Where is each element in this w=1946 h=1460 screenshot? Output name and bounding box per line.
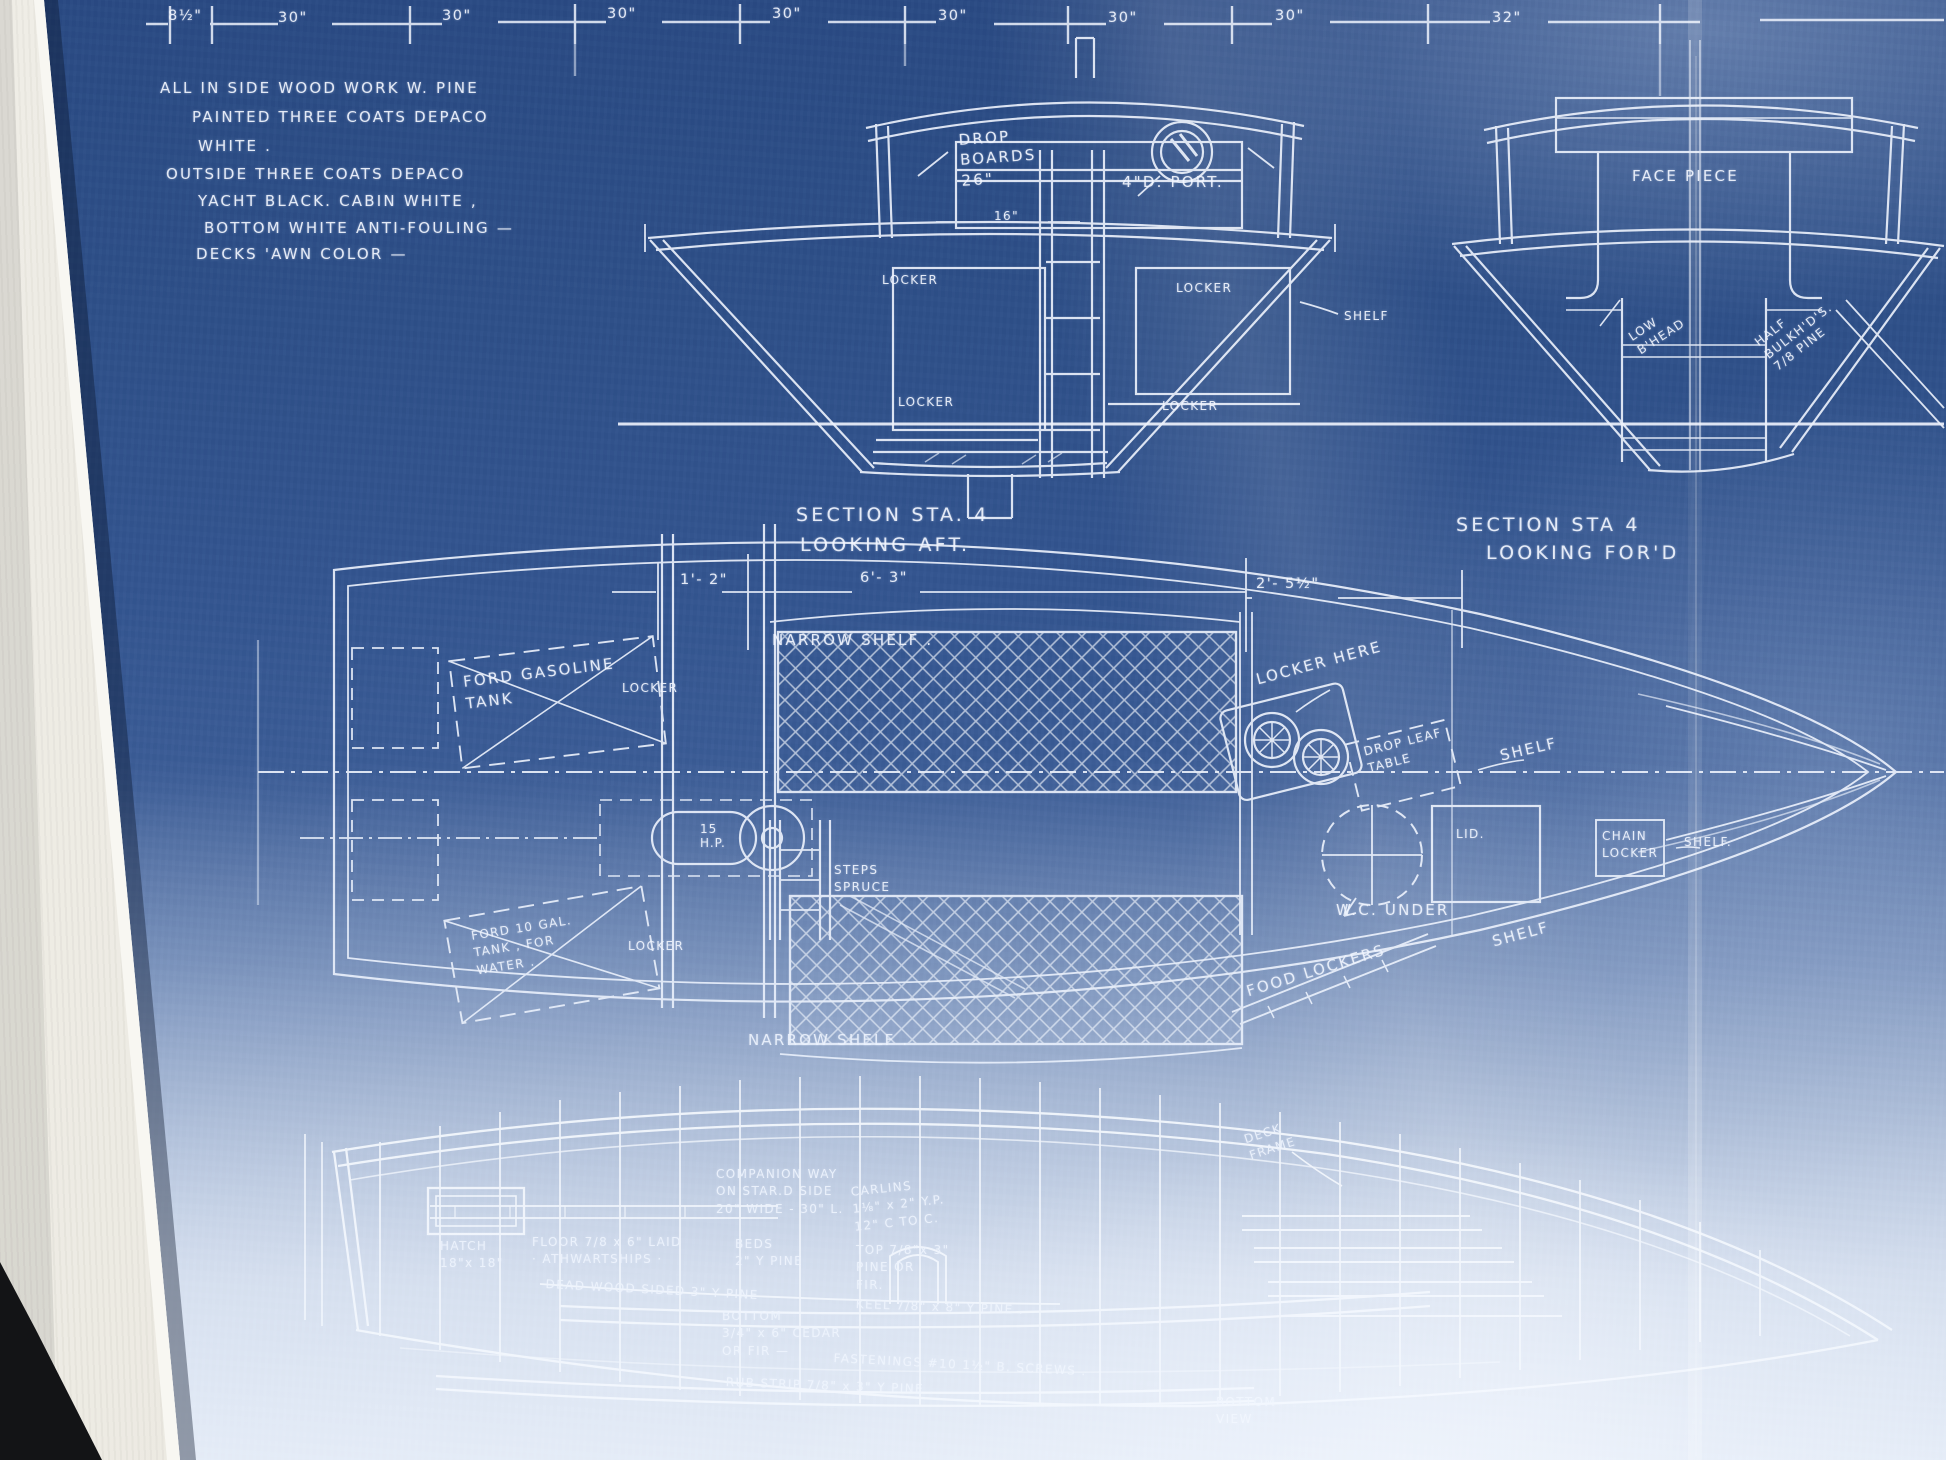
top-dim-label: 30" bbox=[607, 4, 637, 25]
face-piece-label: FACE PIECE bbox=[1632, 166, 1739, 188]
engine-label: 15 H.P. bbox=[700, 822, 726, 851]
note-line: YACHT BLACK. CABIN WHITE , bbox=[198, 191, 478, 213]
section-fwd-caption: LOOKING FOR'D bbox=[1486, 540, 1679, 568]
narrow-shelf-bottom-label: NARROW SHELF . bbox=[748, 1030, 909, 1052]
wc-under-label: W.C. UNDER bbox=[1336, 900, 1450, 922]
section-aft-drawing bbox=[645, 38, 1338, 518]
top-dim-label: 8½" bbox=[168, 6, 202, 27]
shelf-label: SHELF bbox=[1344, 308, 1389, 325]
note-line: BOTTOM WHITE ANTI-FOULING — bbox=[204, 218, 514, 240]
framed-blueprint-photo: 8½" 30" 30" 30" 30" 30" 30" 30" 32" ALL … bbox=[0, 0, 1946, 1460]
carlins-label: CARLINS 1⅛" x 2" Y.P. 12" C TO C. bbox=[850, 1174, 948, 1236]
locker-label: LOCKER bbox=[882, 272, 938, 289]
companion-way-label: COMPANION WAY ON STAR.D SIDE 20" WIDE - … bbox=[716, 1166, 844, 1218]
note-line: DECKS 'AWN COLOR — bbox=[196, 244, 408, 266]
locker-label: LOCKER bbox=[622, 680, 678, 697]
top-dim-label: 30" bbox=[938, 6, 968, 27]
section-fwd-drawing bbox=[1452, 40, 1944, 472]
drop-boards-label: DROP BOARDS 26" bbox=[958, 125, 1039, 191]
floor-label: FLOOR 7/8 x 6" LAID · ATHWARTSHIPS · bbox=[532, 1234, 682, 1269]
top-planking-label: TOP 7/8"x 3" PINE OR FIR. bbox=[856, 1242, 950, 1294]
plan-dim-mid: 6'- 3" bbox=[860, 568, 908, 589]
top-dim-label: 30" bbox=[1108, 8, 1138, 29]
note-line: PAINTED THREE COATS DEPACO bbox=[192, 107, 489, 129]
note-line: OUTSIDE THREE COATS DEPACO bbox=[166, 164, 465, 186]
shelf-label: SHELF. bbox=[1684, 834, 1732, 851]
bottom-view-label: BOTTOM VIEW bbox=[1216, 1394, 1276, 1429]
section-aft-caption: SECTION STA. 4 bbox=[796, 502, 990, 530]
port-label: 4"D. PORT. bbox=[1122, 172, 1224, 194]
top-dim-label: 30" bbox=[442, 6, 472, 27]
plan-dim-right: 2'- 5½" bbox=[1256, 574, 1320, 595]
lid-label: LID. bbox=[1456, 826, 1485, 843]
top-dim-label: 30" bbox=[278, 8, 308, 29]
dim-16-label: 16" bbox=[994, 208, 1019, 225]
top-dim-label: 30" bbox=[1275, 6, 1305, 27]
plan-dim-left: 1'- 2" bbox=[680, 570, 728, 591]
chain-locker-label: CHAIN LOCKER bbox=[1602, 828, 1658, 863]
locker-label: LOCKER bbox=[1176, 280, 1232, 297]
locker-label: LOCKER bbox=[628, 938, 684, 955]
hatch-label: HATCH 18"x 18" bbox=[440, 1238, 504, 1273]
locker-label: LOCKER bbox=[898, 394, 954, 411]
section-fwd-caption: SECTION STA 4 bbox=[1456, 512, 1641, 540]
section-aft-caption: LOOKING AFT. bbox=[800, 532, 970, 560]
steps-label: STEPS SPRUCE bbox=[834, 862, 890, 897]
locker-label: LOCKER bbox=[1162, 398, 1218, 415]
note-line: WHITE . bbox=[198, 136, 272, 158]
top-dim-label: 30" bbox=[772, 4, 802, 25]
narrow-shelf-top-label: NARROW SHELF . bbox=[772, 630, 933, 652]
bottom-planking-label: BOTTOM 3/4" x 6" CEDAR OR FIR — bbox=[722, 1308, 841, 1360]
top-dim-label: 32" bbox=[1492, 8, 1522, 29]
note-line: ALL IN SIDE WOOD WORK W. PINE bbox=[160, 78, 479, 100]
beds-label: BEDS 2" Y PINE bbox=[735, 1236, 803, 1271]
plan-view-drawing bbox=[258, 524, 1944, 1063]
